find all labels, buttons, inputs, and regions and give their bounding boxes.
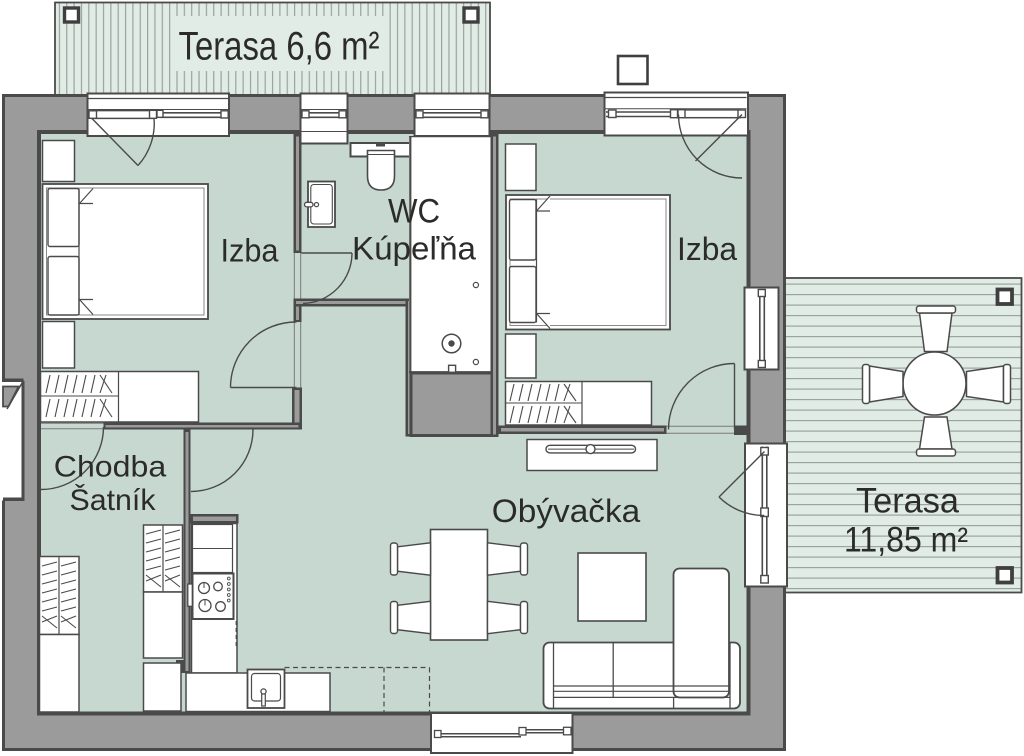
svg-text:Kúpeľňa: Kúpeľňa <box>352 231 476 267</box>
svg-text:Obývačka: Obývačka <box>492 493 641 529</box>
svg-text:Terasa: Terasa <box>856 482 960 521</box>
svg-text:11,85 m²: 11,85 m² <box>844 521 968 560</box>
svg-text:Izba: Izba <box>677 231 737 267</box>
svg-text:Chodba: Chodba <box>54 451 167 484</box>
svg-text:Izba: Izba <box>221 233 279 269</box>
svg-text:WC: WC <box>388 193 440 231</box>
svg-text:Terasa 6,6 m²: Terasa 6,6 m² <box>179 25 380 69</box>
svg-text:Šatník: Šatník <box>70 483 157 517</box>
